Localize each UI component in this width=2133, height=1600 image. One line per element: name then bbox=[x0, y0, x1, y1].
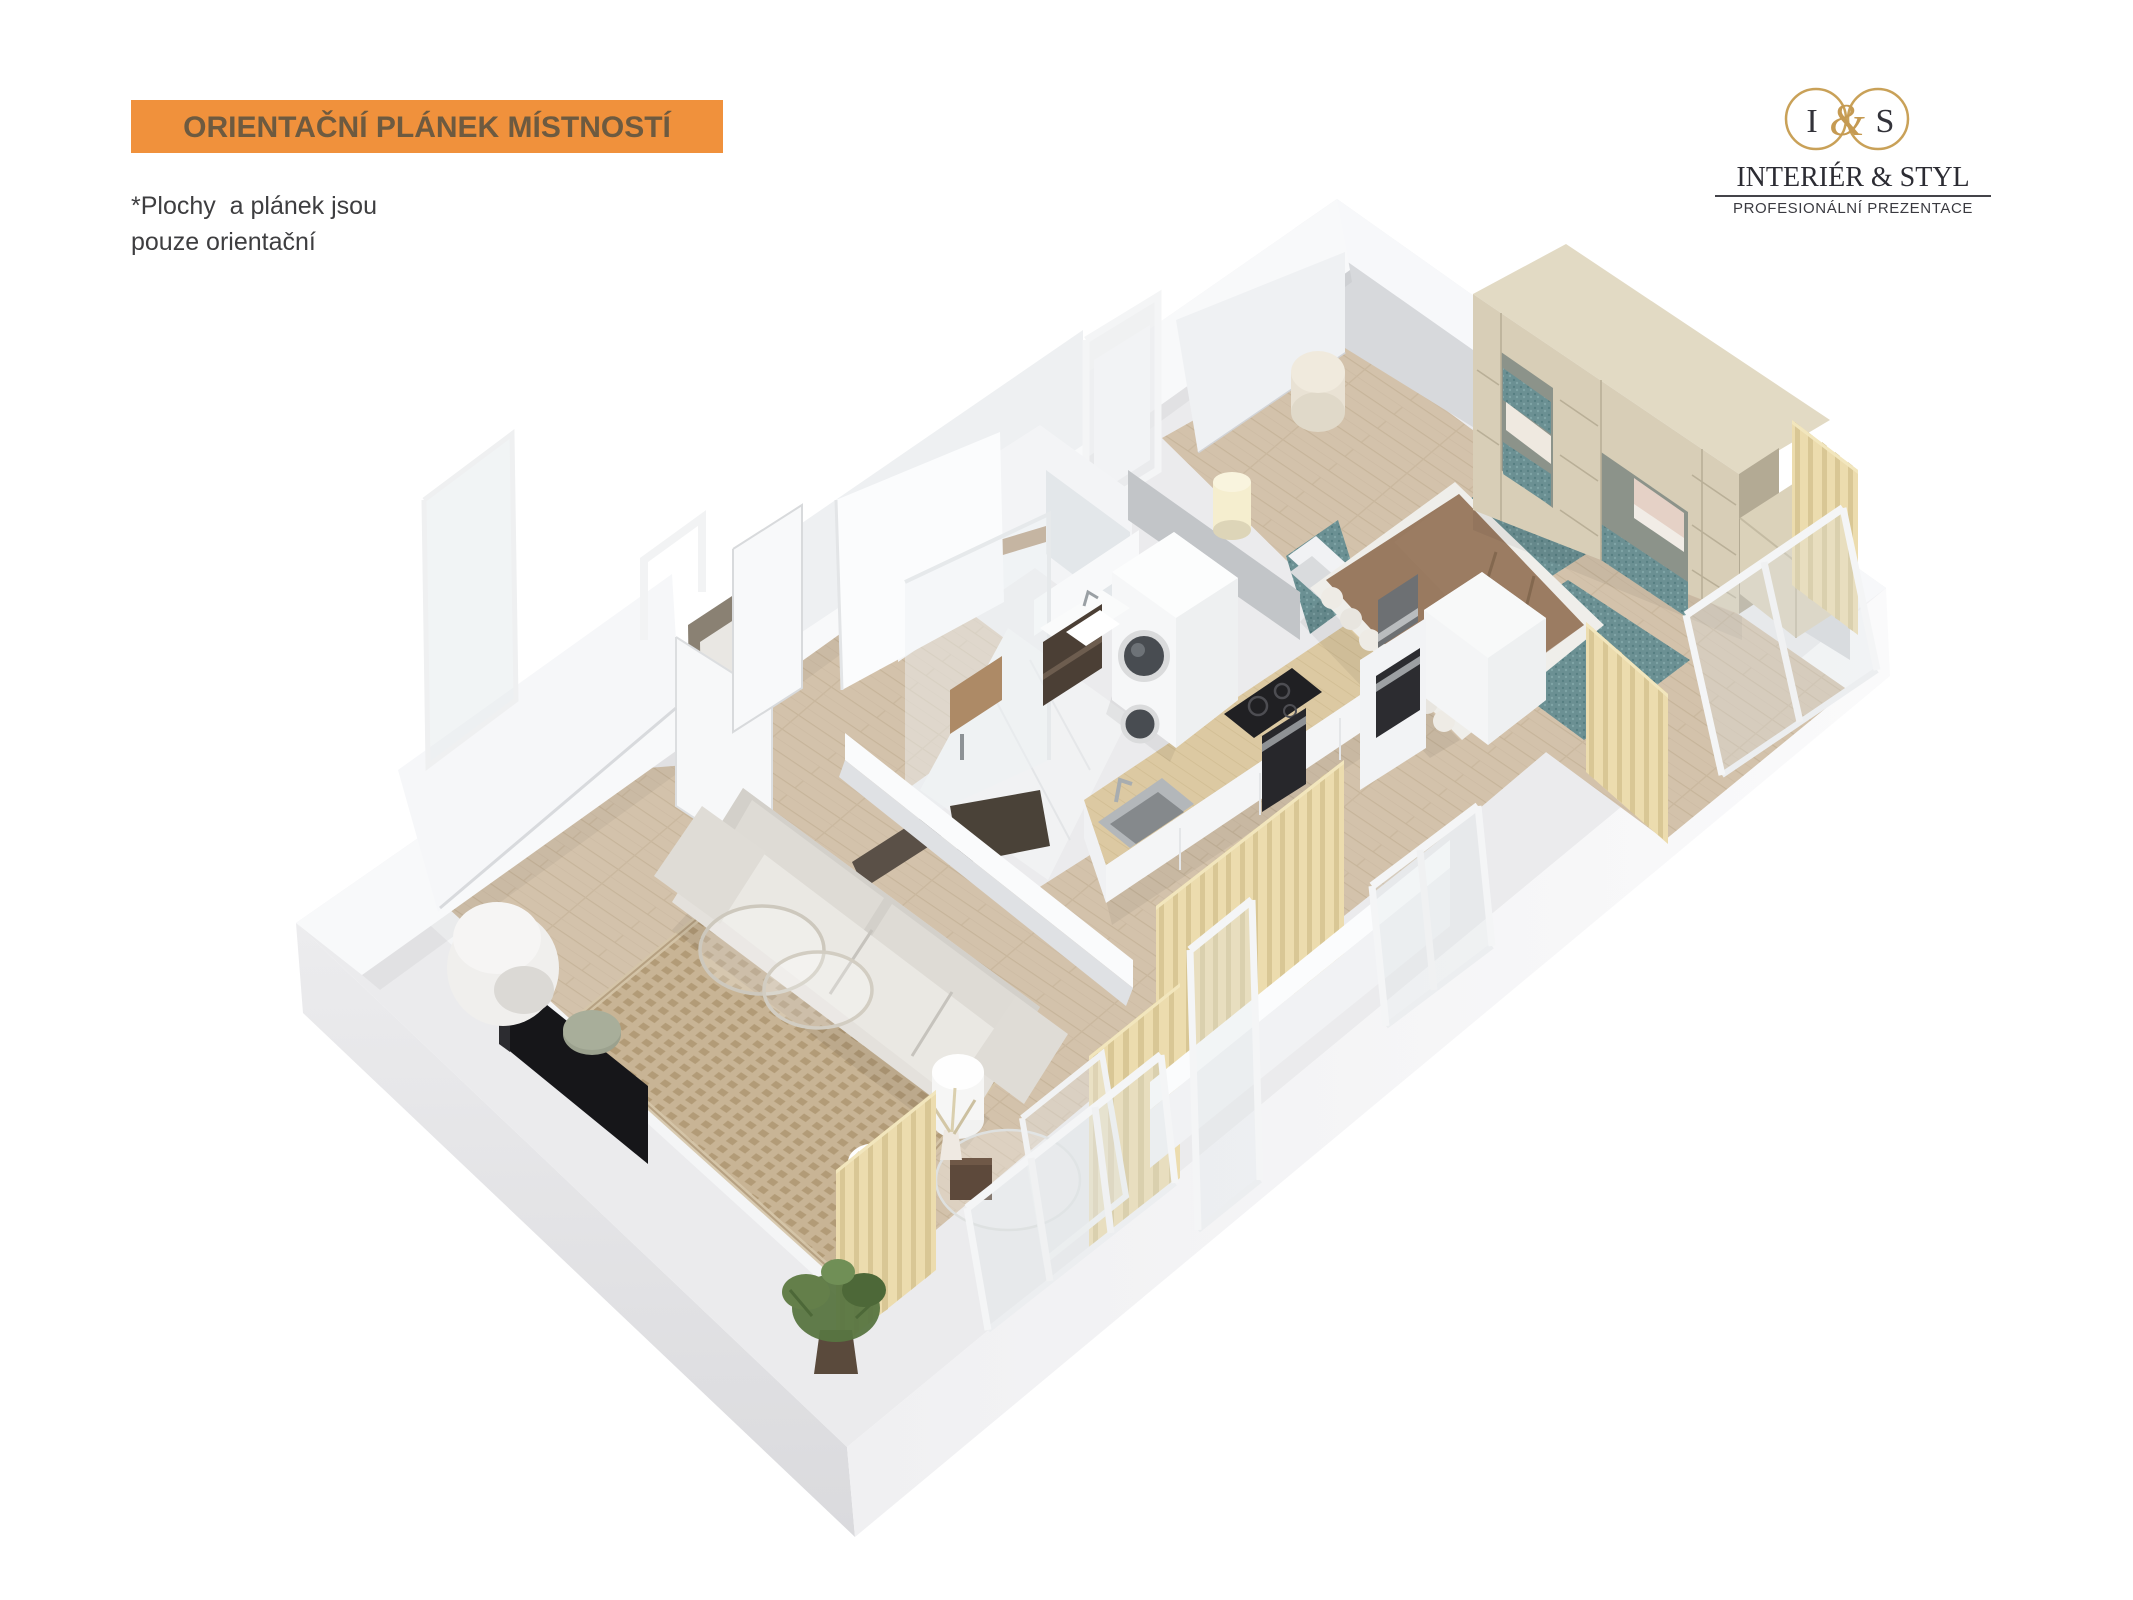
svg-text:S: S bbox=[1876, 103, 1895, 140]
svg-text:&: & bbox=[1829, 94, 1865, 145]
svg-text:I: I bbox=[1806, 103, 1817, 140]
